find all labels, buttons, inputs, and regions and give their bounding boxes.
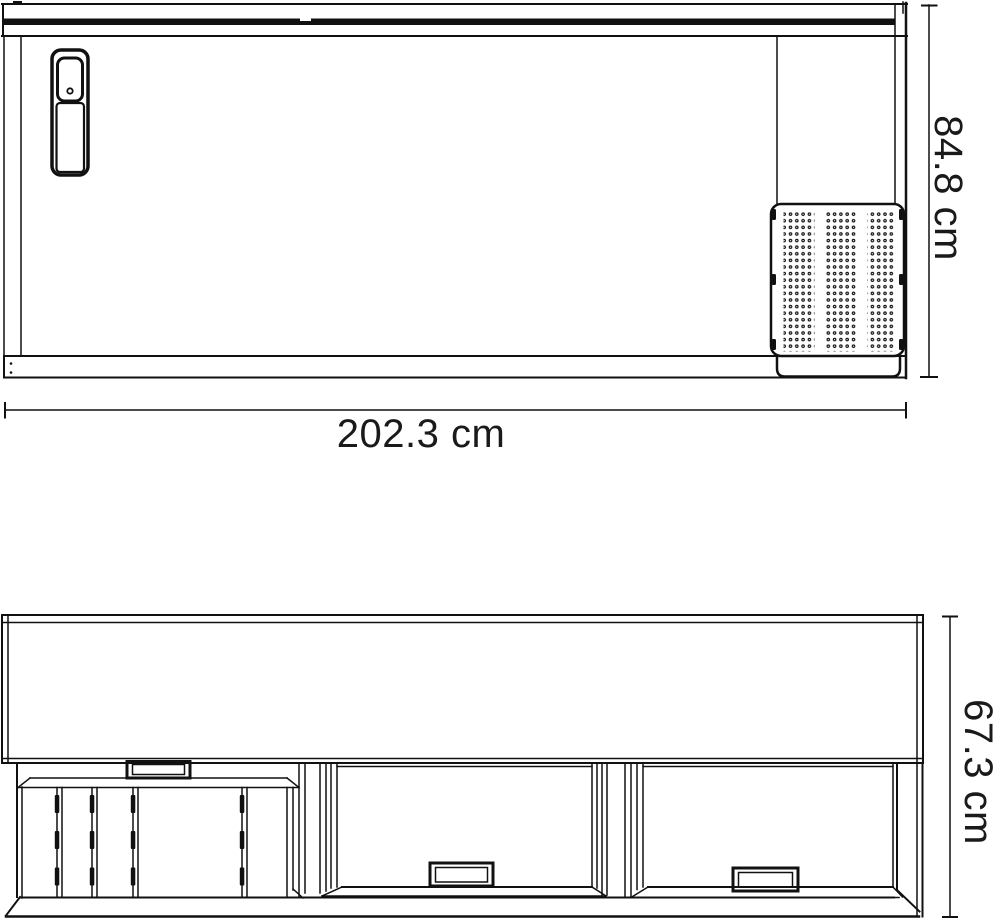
width-dimension-label: 202.3 cm	[171, 412, 671, 462]
depth-dimension-label: 67.3 cm	[956, 622, 1000, 921]
lid-seal-band	[2, 19, 895, 26]
keyhole-icon	[67, 88, 72, 93]
right-recessed-handle	[733, 868, 798, 891]
sliding-door-compartment	[18, 762, 305, 899]
base-structure	[6, 763, 923, 917]
door-lock	[52, 50, 88, 175]
middle-compartment	[320, 763, 607, 898]
depth-dimension-line	[943, 617, 957, 918]
worktop	[2, 615, 923, 763]
height-dimension-label: 84.8 cm	[926, 38, 970, 338]
grille-plinth	[777, 357, 900, 377]
bottom-rail	[4, 356, 906, 378]
ventilation-grille	[771, 204, 904, 356]
technical-drawing-canvas: 202.3 cm 84.8 cm 67.3 cm	[0, 0, 1000, 921]
middle-recessed-handle	[430, 863, 493, 886]
lid-left-tick	[13, 1, 22, 5]
door-track-clips	[55, 795, 245, 886]
top-recessed-handle	[127, 762, 190, 779]
right-compartment	[625, 763, 903, 898]
front-elevation-view	[2, 1, 937, 418]
plan-view	[2, 615, 957, 917]
